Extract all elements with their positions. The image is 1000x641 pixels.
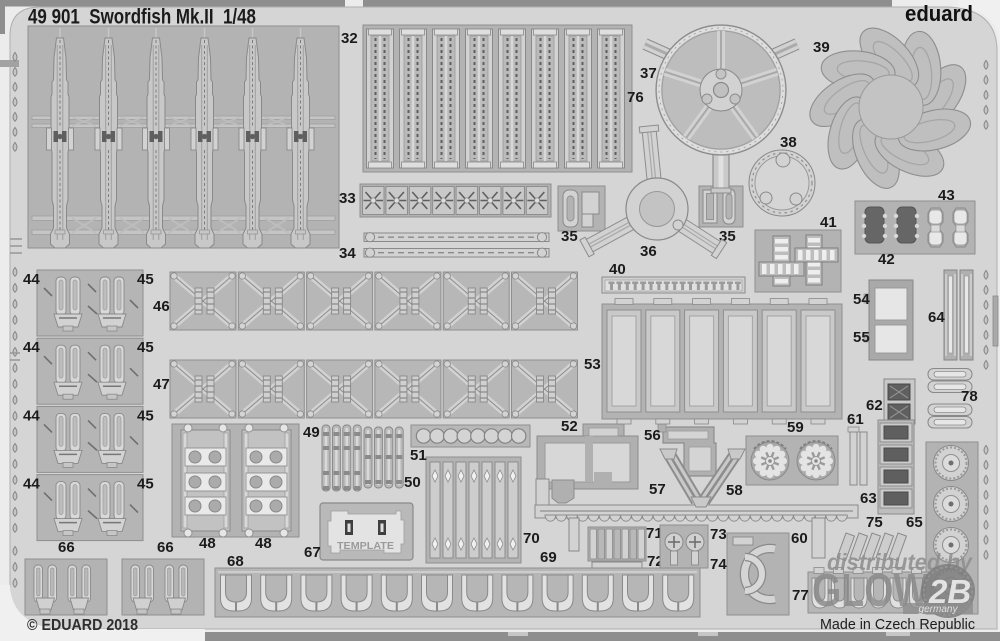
svg-text:49: 49 — [303, 424, 320, 441]
svg-text:59: 59 — [787, 419, 804, 436]
svg-text:75: 75 — [866, 514, 883, 531]
svg-text:Made in Czech Republic: Made in Czech Republic — [820, 617, 975, 633]
svg-text:58: 58 — [726, 482, 743, 499]
svg-text:48: 48 — [255, 535, 272, 552]
svg-text:39: 39 — [813, 39, 830, 56]
svg-text:69: 69 — [540, 549, 557, 566]
svg-text:51: 51 — [410, 447, 427, 464]
svg-text:45: 45 — [137, 407, 154, 424]
svg-text:54: 54 — [853, 291, 870, 308]
svg-text:48: 48 — [199, 535, 216, 552]
svg-text:73: 73 — [710, 526, 727, 543]
svg-text:35: 35 — [561, 228, 578, 245]
svg-text:61: 61 — [847, 411, 864, 428]
svg-text:34: 34 — [339, 245, 356, 262]
svg-text:38: 38 — [780, 134, 797, 151]
svg-text:© EDUARD 2018: © EDUARD 2018 — [27, 617, 138, 634]
svg-text:47: 47 — [153, 376, 170, 393]
svg-text:42: 42 — [878, 251, 895, 268]
svg-text:41: 41 — [820, 214, 837, 231]
svg-text:55: 55 — [853, 329, 870, 346]
svg-text:50: 50 — [404, 474, 421, 491]
svg-text:67: 67 — [304, 544, 321, 561]
svg-text:60: 60 — [791, 530, 808, 547]
svg-text:77: 77 — [792, 587, 809, 604]
svg-text:46: 46 — [153, 298, 170, 315]
svg-text:76: 76 — [627, 89, 644, 106]
svg-text:64: 64 — [928, 309, 945, 326]
svg-text:52: 52 — [561, 418, 578, 435]
svg-text:44: 44 — [23, 339, 40, 356]
svg-text:44: 44 — [23, 271, 40, 288]
svg-text:germany: germany — [919, 604, 959, 615]
svg-text:57: 57 — [649, 481, 666, 498]
svg-text:66: 66 — [58, 539, 75, 556]
svg-text:TEMPLATE: TEMPLATE — [337, 540, 394, 552]
svg-text:33: 33 — [339, 190, 356, 207]
svg-text:43: 43 — [938, 187, 955, 204]
svg-text:44: 44 — [23, 407, 40, 424]
svg-text:44: 44 — [23, 476, 40, 493]
svg-text:56: 56 — [644, 427, 661, 444]
svg-text:45: 45 — [137, 339, 154, 356]
svg-text:45: 45 — [137, 271, 154, 288]
svg-text:49 901 Swordfish Mk.II 1/48: 49 901 Swordfish Mk.II 1/48 — [28, 6, 256, 29]
svg-text:63: 63 — [860, 490, 877, 507]
svg-text:62: 62 — [866, 397, 883, 414]
svg-text:53: 53 — [584, 356, 601, 373]
svg-text:78: 78 — [961, 388, 978, 405]
svg-text:66: 66 — [157, 539, 174, 556]
svg-text:65: 65 — [906, 514, 923, 531]
svg-text:40: 40 — [609, 261, 626, 278]
svg-text:eduard: eduard — [905, 1, 973, 26]
svg-text:68: 68 — [227, 553, 244, 570]
svg-text:74: 74 — [710, 556, 727, 573]
svg-text:70: 70 — [523, 530, 540, 547]
svg-text:36: 36 — [640, 243, 657, 260]
svg-text:45: 45 — [137, 476, 154, 493]
svg-text:37: 37 — [640, 65, 657, 82]
svg-text:32: 32 — [341, 30, 358, 47]
